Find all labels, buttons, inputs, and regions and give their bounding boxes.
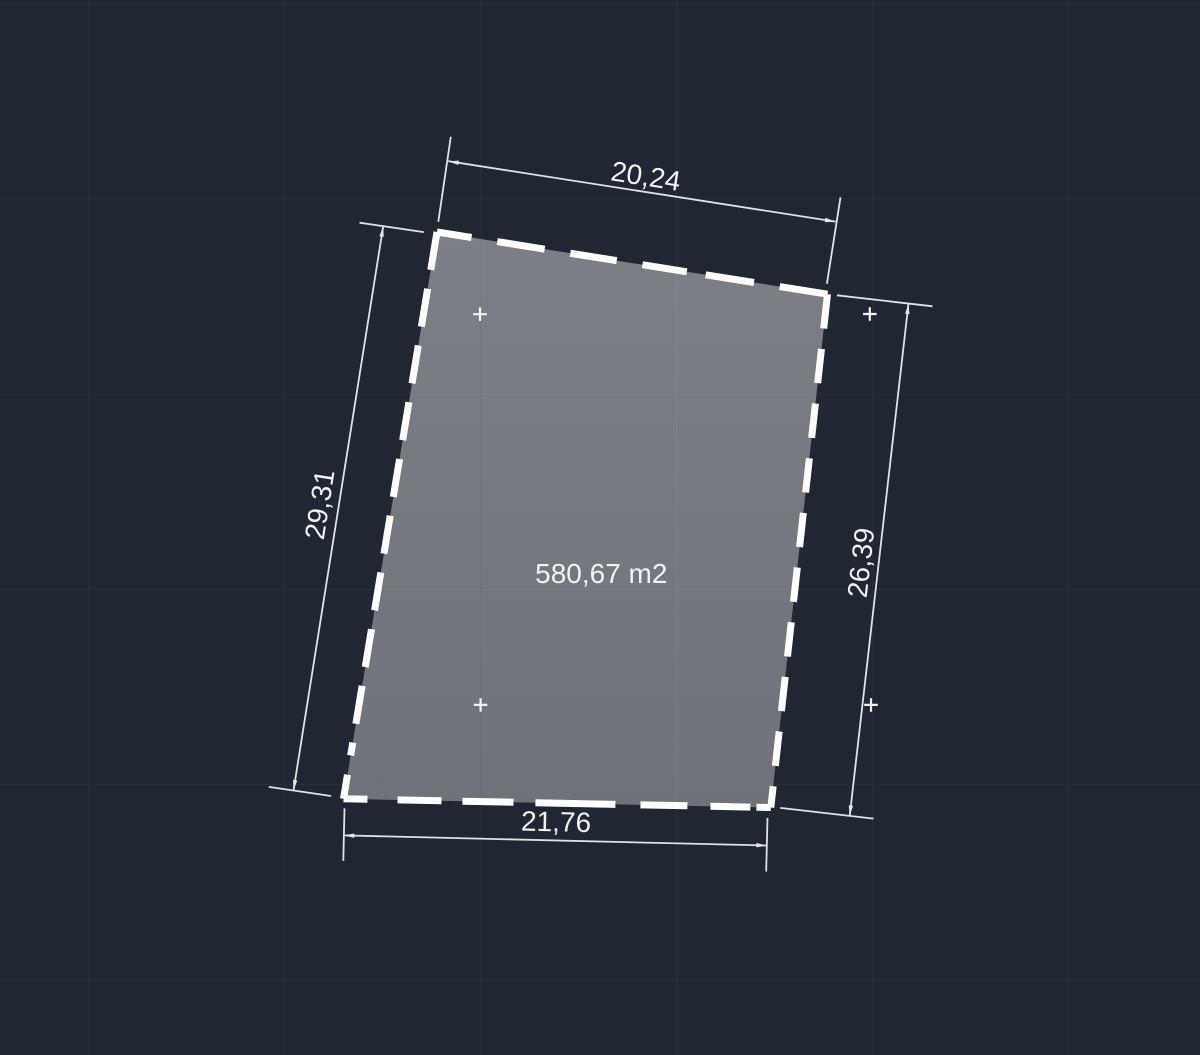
- svg-text:580,67 m2: 580,67 m2: [535, 558, 667, 589]
- svg-text:21,76: 21,76: [521, 805, 592, 838]
